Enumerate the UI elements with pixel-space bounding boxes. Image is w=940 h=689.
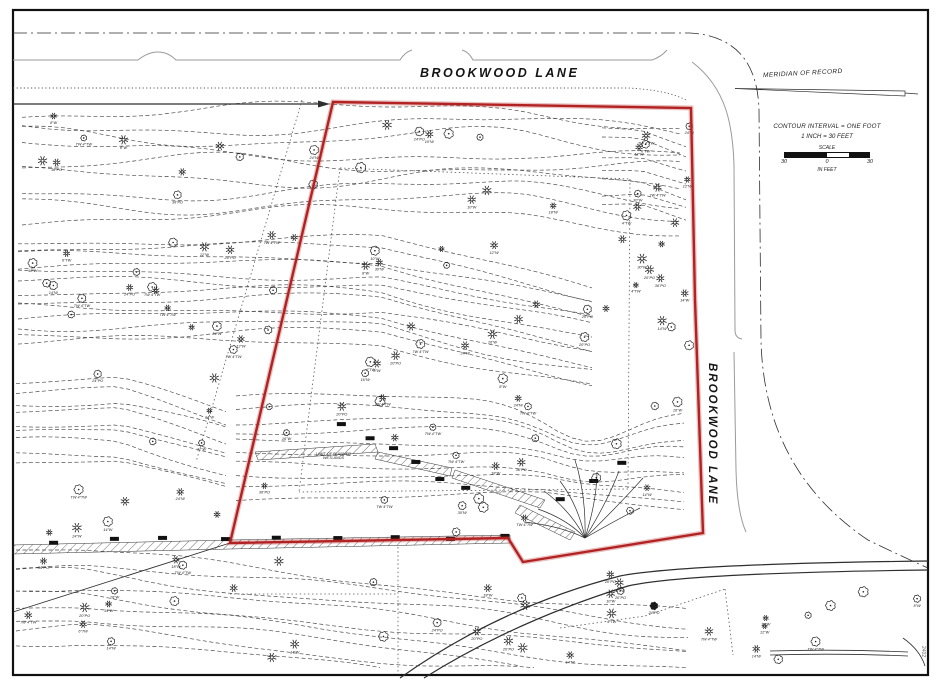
svg-text:20"PO: 20"PO — [614, 596, 626, 600]
svg-text:6"TW: 6"TW — [78, 630, 88, 634]
svg-text:14"W: 14"W — [752, 654, 762, 658]
scale-zero-value: 0 — [825, 159, 828, 165]
svg-text:7W 4"TW: 7W 4"TW — [20, 621, 37, 625]
svg-text:4"TW: 4"TW — [607, 620, 617, 624]
svg-text:10"W: 10"W — [425, 140, 435, 144]
svg-text:12"W: 12"W — [490, 251, 500, 255]
scale-right-value: 30 — [867, 159, 873, 165]
svg-text:16"W: 16"W — [488, 341, 498, 345]
svg-text:8"W: 8"W — [914, 604, 921, 608]
svg-text:24"W: 24"W — [211, 332, 222, 336]
svg-text:14"W: 14"W — [642, 493, 652, 497]
svg-text:7W 4"TW: 7W 4"TW — [264, 241, 281, 245]
scale-title: SCALE — [772, 145, 882, 151]
svg-text:7W 4"TW: 7W 4"TW — [701, 637, 718, 641]
svg-text:TW 4"TW: TW 4"TW — [425, 432, 442, 436]
svg-text:36"PO: 36"PO — [614, 589, 625, 593]
svg-text:14"W: 14"W — [680, 299, 690, 303]
svg-text:16"W: 16"W — [282, 437, 292, 441]
svg-text:18"W: 18"W — [483, 594, 493, 598]
svg-text:TW 4"TW: TW 4"TW — [74, 304, 91, 308]
svg-text:20"PO: 20"PO — [470, 637, 482, 641]
svg-text:12"W: 12"W — [236, 344, 246, 348]
svg-text:24"PO: 24"PO — [123, 293, 135, 297]
svg-text:24"PO: 24"PO — [431, 628, 443, 632]
svg-text:4"TW: 4"TW — [366, 368, 376, 372]
svg-text:14"W: 14"W — [104, 609, 114, 613]
svg-text:7W 4"TW: 7W 4"TW — [520, 411, 537, 415]
svg-text:TW 4"TW: TW 4"TW — [376, 505, 393, 509]
svg-text:18"W: 18"W — [491, 472, 501, 476]
svg-text:12"W: 12"W — [200, 253, 210, 257]
svg-text:16"W: 16"W — [361, 378, 371, 382]
svg-text:18"W: 18"W — [28, 269, 38, 273]
svg-text:14"W: 14"W — [103, 528, 113, 532]
scale-bar-segment — [827, 153, 849, 157]
scale-bar — [784, 152, 870, 158]
svg-text:TW 4"TW: TW 4"TW — [159, 313, 176, 317]
scale-units: IN FEET — [772, 167, 882, 173]
svg-text:30"W: 30"W — [633, 199, 643, 203]
svg-text:7W 4"TW: 7W 4"TW — [374, 403, 391, 407]
svg-text:TW 4"TW: TW 4"TW — [76, 142, 93, 146]
svg-text:8"W: 8"W — [499, 385, 506, 389]
svg-text:TW 4"TW: TW 4"TW — [175, 571, 192, 575]
svg-text:20"PO: 20"PO — [581, 315, 593, 319]
svg-text:36"PO: 36"PO — [38, 566, 49, 570]
svg-text:8"W: 8"W — [362, 272, 369, 276]
street-label-right: BROOKWOOD LANE — [706, 363, 718, 505]
svg-text:8"W: 8"W — [50, 121, 57, 125]
svg-text:14"W: 14"W — [658, 327, 668, 331]
svg-text:24"W: 24"W — [71, 534, 82, 538]
svg-text:30"W: 30"W — [458, 511, 468, 515]
svg-text:20"PO: 20"PO — [643, 276, 655, 280]
svg-text:24"W: 24"W — [460, 351, 471, 355]
scale-values: 30 0 30 — [781, 159, 873, 165]
svg-text:14"W: 14"W — [761, 623, 771, 627]
svg-text:7W 4"TW: 7W 4"TW — [649, 193, 666, 197]
svg-text:16"W: 16"W — [110, 596, 120, 600]
scale-bar-segment — [785, 153, 827, 157]
svg-text:24"PO: 24"PO — [647, 611, 659, 615]
svg-text:36"PO: 36"PO — [172, 200, 183, 204]
svg-text:TW 4"TW: TW 4"TW — [448, 460, 465, 464]
svg-text:36"PO: 36"PO — [516, 468, 527, 472]
svg-text:14"W: 14"W — [107, 647, 117, 651]
svg-text:16"W: 16"W — [673, 408, 683, 412]
svg-text:18"W: 18"W — [549, 211, 559, 215]
svg-text:20"PO: 20"PO — [335, 412, 347, 416]
sheet-corner-note: 2402 — [920, 646, 926, 657]
wetlands-note: LIMIT OF PLANNED WETLANDS — [316, 452, 351, 460]
svg-text:7W 4"TW: 7W 4"TW — [144, 293, 161, 297]
svg-text:6"TW: 6"TW — [641, 150, 651, 154]
svg-text:24"W: 24"W — [175, 497, 186, 501]
svg-text:14"W: 14"W — [49, 291, 59, 295]
svg-text:12"W: 12"W — [760, 631, 770, 635]
svg-text:TW 4"TW: TW 4"TW — [638, 142, 655, 146]
svg-text:20"PO: 20"PO — [78, 614, 90, 618]
survey-map-canvas: 36"PO12"WTW 4"TW10"W24"W24"PO8"W8"WTW 4"… — [0, 0, 940, 689]
svg-text:24"W: 24"W — [513, 403, 524, 407]
svg-text:30"W: 30"W — [375, 268, 385, 272]
svg-text:14"W: 14"W — [205, 415, 215, 419]
svg-text:12"W: 12"W — [197, 447, 207, 451]
svg-text:4"TW: 4"TW — [622, 222, 632, 226]
wetlands-note-line2: WETLANDS — [316, 456, 351, 460]
svg-text:7W 4"TW: 7W 4"TW — [412, 350, 429, 354]
svg-text:20"PO: 20"PO — [502, 647, 514, 651]
svg-text:24"PO: 24"PO — [224, 256, 236, 260]
street-label-top: BROOKWOOD LANE — [420, 66, 579, 80]
survey-sheet: 36"PO12"WTW 4"TW10"W24"W24"PO8"W8"WTW 4"… — [0, 0, 940, 689]
scale-legend: CONTOUR INTERVAL = ONE FOOT 1 INCH = 30 … — [772, 123, 882, 173]
svg-text:36"PO: 36"PO — [259, 491, 270, 495]
svg-text:7W 4"TW: 7W 4"TW — [225, 355, 242, 359]
svg-text:20"PO: 20"PO — [389, 362, 401, 366]
scale-left-value: 30 — [781, 159, 787, 165]
contour-interval-note: CONTOUR INTERVAL = ONE FOOT — [772, 123, 882, 130]
svg-text:36"PO: 36"PO — [51, 168, 62, 172]
svg-text:TW 4"TW: TW 4"TW — [807, 648, 824, 652]
svg-text:6"TW: 6"TW — [62, 259, 72, 263]
svg-text:24"PO: 24"PO — [91, 379, 103, 383]
svg-text:4"TW: 4"TW — [631, 290, 641, 294]
svg-text:20"PO: 20"PO — [604, 580, 616, 584]
svg-text:8"W: 8"W — [120, 146, 127, 150]
scale-bar-segment — [849, 153, 869, 157]
svg-text:10"W: 10"W — [606, 600, 616, 604]
svg-text:10"W: 10"W — [467, 206, 477, 210]
svg-text:36"PO: 36"PO — [655, 284, 666, 288]
svg-text:14"W: 14"W — [566, 660, 576, 664]
svg-text:30"W: 30"W — [637, 265, 647, 269]
svg-text:TW 4"TW: TW 4"TW — [71, 496, 88, 500]
svg-text:24"PO: 24"PO — [413, 137, 425, 141]
map-scale-note: 1 INCH = 30 FEET — [772, 133, 882, 140]
svg-text:TW 4"TW: TW 4"TW — [516, 523, 533, 527]
svg-text:14"W: 14"W — [290, 650, 300, 654]
svg-text:20"PO: 20"PO — [578, 343, 590, 347]
